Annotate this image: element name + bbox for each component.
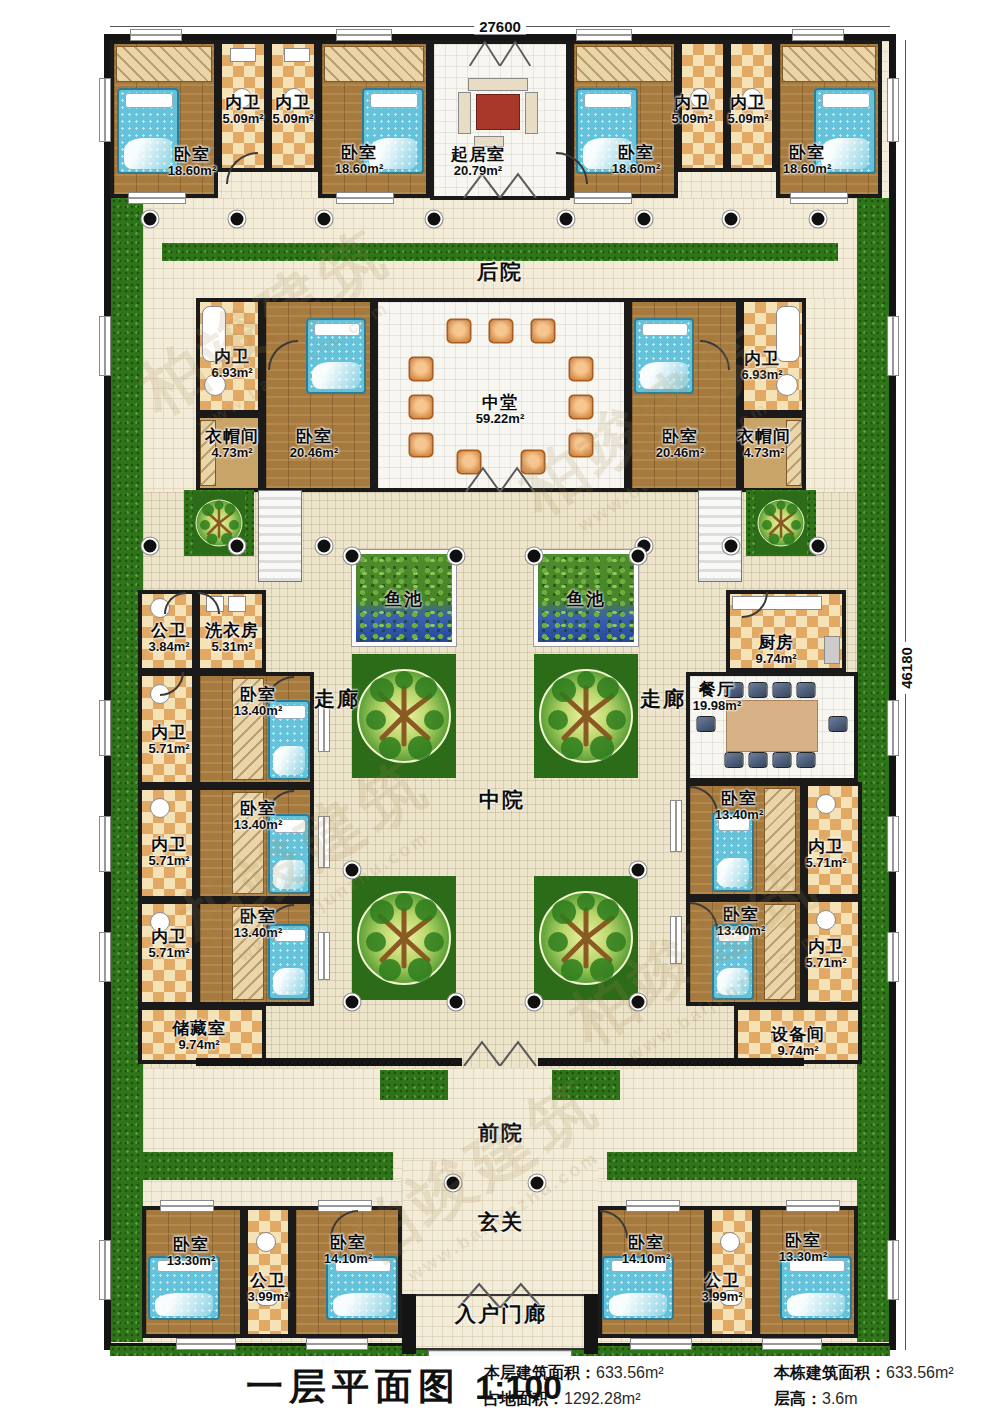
room-label: 卧室20.46m² [290,428,338,460]
window [99,932,111,982]
dimension-line-right [905,40,906,1350]
zone-foyer: 玄关 [478,1208,524,1236]
column-dot [723,538,740,555]
hall-chair [409,433,434,458]
window [762,1338,822,1350]
double-door [468,40,532,66]
room-label: 内卫5.71m² [148,928,189,960]
stat-footprint: 占地面积：1292.28m² [484,1389,774,1410]
window [670,800,682,852]
plan-stats: 本层建筑面积：633.56m² 本栋建筑面积：633.56m² 占地面积：129… [484,1360,984,1412]
room-label: 内卫5.71m² [805,838,846,870]
window [887,316,899,376]
zone-corridor-right: 走廊 [640,685,686,713]
window [887,78,899,142]
wall [538,1058,804,1066]
stat-floor-height: 层高：3.6m [774,1389,984,1410]
sink-fixture [816,794,836,814]
wall [196,1058,462,1066]
title-block: 一层平面图1:100 本层建筑面积：633.56m² 本栋建筑面积：633.56… [0,1356,1000,1414]
column-dot [426,211,443,228]
room-label: 公卫3.84m² [148,622,189,654]
room-label: 内卫5.09m² [222,94,263,126]
room-label: 内卫5.71m² [148,836,189,868]
room-label: 卧室13.40m² [715,790,763,822]
porch-pier [402,1294,416,1354]
column-dot [316,538,333,555]
stat-building-area: 本栋建筑面积：633.56m² [774,1363,984,1384]
room-label: 衣帽间4.73m² [205,428,259,460]
room-label: 厨房9.74m² [755,634,796,666]
room-label: 储藏室9.74m² [172,1020,226,1052]
room-label: 中堂59.22m² [476,394,524,426]
room-label: 卧室18.60m² [612,144,660,176]
window [336,29,392,41]
window [306,1338,368,1350]
zone-corridor-left: 走廊 [314,685,360,713]
window [887,932,899,982]
sink-fixture [256,1232,276,1252]
window [576,29,632,41]
room-label: 内卫5.71m² [148,724,189,756]
bed [780,1256,852,1320]
column-dot [526,548,543,565]
column-dot [630,862,647,879]
walkway-right [804,298,857,492]
room-label: 卧室14.10m² [622,1234,670,1266]
stat-floor-area: 本层建筑面积：633.56m² [484,1363,774,1384]
window [630,1338,692,1350]
zone-frontyard: 前院 [478,1119,524,1147]
column-dot [229,211,246,228]
hedge [380,1070,448,1100]
room-label: 衣帽间4.73m² [737,428,791,460]
room-label: 卧室18.60m² [335,144,383,176]
room-label: 卧室13.40m² [234,800,282,832]
room-label: 内卫5.71m² [805,938,846,970]
window [792,29,844,41]
room-label: 洗衣房5.31m² [205,622,259,654]
hall-chair [569,395,594,420]
zone-entry-porch: 入户门廊 [455,1300,547,1328]
sofa [468,78,528,91]
zone-backyard: 后院 [477,258,523,286]
dining-chair [797,752,816,768]
column-dot [445,1175,462,1192]
stove [824,636,840,664]
dining-chair [773,752,792,768]
hedge [143,1152,393,1180]
tree [534,654,638,778]
window [99,816,111,872]
hedge [607,1152,857,1180]
room-label: 卧室13.40m² [717,906,765,938]
window [130,29,182,41]
column-dot [448,994,465,1011]
toilet-fixture [230,48,256,62]
zone-courtyard: 中院 [479,786,525,814]
wardrobe [782,46,876,82]
window [318,932,330,980]
window [318,1200,372,1212]
floor-plan: 27600 46180 后院 中院 前院 玄关 入户门廊 走廊 走廊 鱼池 鱼池… [0,0,1000,1414]
column-dot [344,548,361,565]
room-label: 卧室13.40m² [234,686,282,718]
window [626,1200,680,1212]
window [318,816,330,868]
window [99,1240,111,1300]
sofa [458,92,471,134]
hall-chair [489,319,514,344]
hall-chair [409,395,434,420]
column-dot [316,211,333,228]
tree [534,876,638,1000]
walkway-left [143,298,196,492]
tree [750,492,812,554]
grass-strip-right [857,198,889,1342]
room-label: 公卫3.99m² [701,1272,742,1304]
room-label: 卧室20.46m² [656,428,704,460]
porch-pier [584,1294,598,1354]
column-dot [558,211,575,228]
column-dot [448,548,465,565]
rug [476,94,520,130]
dining-chair [829,716,848,732]
room-label: 内卫6.93m² [741,350,782,382]
column-dot [142,538,159,555]
room-label: 内卫5.09m² [272,94,313,126]
zone-pond-left: 鱼池 [384,587,424,611]
tree [352,654,456,778]
room-label: 卧室13.40m² [234,908,282,940]
wardrobe [764,788,796,892]
room-label: 内卫5.09m² [727,94,768,126]
dimension-top: 27600 [474,18,526,35]
stairs-right [698,490,742,582]
dining-chair [773,682,792,698]
column-dot [526,994,543,1011]
window [336,192,394,204]
room-label: 内卫5.09m² [671,94,712,126]
hall-chair [569,433,594,458]
window [99,316,111,376]
column-dot [142,211,159,228]
dining-chair [697,716,716,732]
hall-chair [569,357,594,382]
column-dot [344,994,361,1011]
hall-chair [531,319,556,344]
window [790,192,848,204]
double-door [464,466,536,492]
room-label: 公卫3.99m² [247,1272,288,1304]
sofa [525,92,538,134]
room-label: 卧室13.30m² [167,1236,215,1268]
column-dot [529,1175,546,1192]
column-dot [810,211,827,228]
dimension-right: 46180 [898,642,915,694]
window [786,1200,840,1212]
column-dot [810,538,827,555]
dining-chair [725,752,744,768]
tree [352,876,456,1000]
wardrobe [116,46,212,82]
hall-chair [447,319,472,344]
room-label: 卧室13.30m² [779,1232,827,1264]
plan-title-text: 一层平面图 [246,1366,461,1407]
window [574,192,632,204]
bed [306,318,366,394]
window [887,816,899,872]
window [99,700,111,756]
zone-pond-right: 鱼池 [566,587,606,611]
room-label: 餐厅19.98m² [693,681,741,713]
column-dot [636,211,653,228]
wardrobe [764,904,796,1000]
wardrobe [324,46,424,82]
room-label: 内卫6.93m² [211,348,252,380]
sink-fixture [150,798,170,818]
window [160,1200,214,1212]
double-door [462,1040,538,1066]
window [99,78,111,142]
window [887,700,899,756]
room-label: 卧室18.60m² [783,144,831,176]
stairs-left [258,490,302,582]
hedge [552,1070,620,1100]
hall-chair [409,357,434,382]
washer [228,596,246,612]
column-dot [344,862,361,879]
dining-chair [749,752,768,768]
column-dot [630,548,647,565]
room-label: 卧室18.60m² [168,146,216,178]
sink-fixture [720,1232,740,1252]
window [887,1240,899,1300]
sink-fixture [816,910,836,930]
column-dot [229,538,246,555]
toilet-fixture [284,48,310,62]
room-label: 设备间9.74m² [771,1026,825,1058]
room-label: 卧室14.10m² [324,1234,372,1266]
bed [712,812,754,892]
dining-chair [797,682,816,698]
dining-chair [749,682,768,698]
window [176,1338,236,1350]
column-dot [630,994,647,1011]
room-label: 起居室20.79m² [451,146,505,178]
column-dot [723,211,740,228]
window [128,192,186,204]
window [670,916,682,964]
wardrobe [576,46,672,82]
bed [634,318,694,394]
